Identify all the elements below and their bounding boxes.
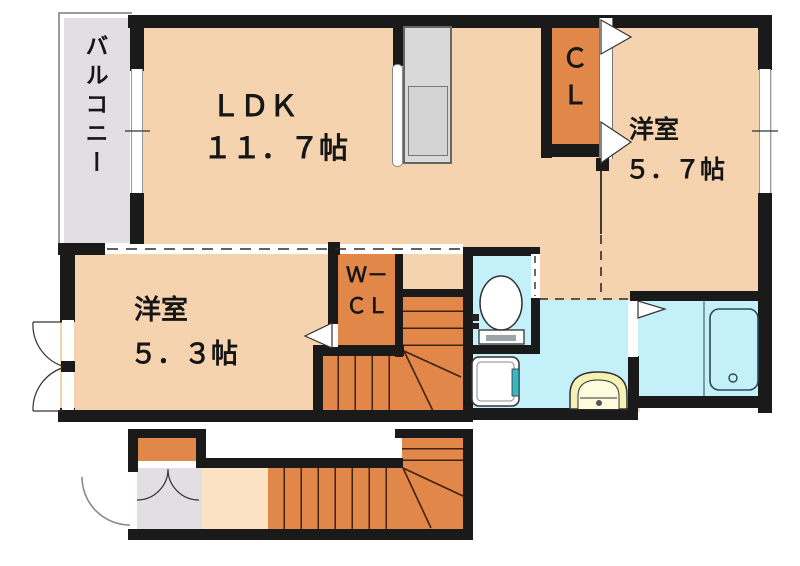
bedroom53-label: 洋室 ５．３帖 <box>130 288 238 376</box>
floorplan-canvas: バルコニー ＬＤＫ １１．７帖 Ｃ Ｌ 洋室 ５．７帖 Ｗ－ ＣＬ 洋室 ５．３… <box>0 0 800 566</box>
stairs-1f-winder <box>402 468 464 529</box>
window-53-lower <box>62 370 74 410</box>
wall-toilet-top <box>463 247 540 256</box>
wall-1f-leftblock-top <box>128 429 206 438</box>
wall-toilet-right <box>531 298 540 352</box>
washroom-floor <box>538 300 632 410</box>
wall-stairs-left <box>313 350 323 422</box>
wall-bath-left <box>628 356 639 400</box>
wcl-line2: ＣＬ <box>336 291 398 322</box>
wall-nub-cl-door <box>596 158 609 171</box>
opening-ldk-slide-band <box>105 244 463 254</box>
window-53-upper-arc <box>33 322 62 366</box>
stairs-1f-upper-block <box>402 438 464 468</box>
wall-ldk-left-upper <box>130 15 144 71</box>
shoe-cabinet <box>138 437 197 462</box>
wall-53-left-upper <box>60 243 75 322</box>
cl-label: Ｃ Ｌ <box>558 40 592 114</box>
door-cl-strip <box>599 18 613 159</box>
entrance-hall-floor <box>202 468 268 529</box>
window-53-upper <box>62 320 74 362</box>
stairs-2f-winder <box>402 350 463 412</box>
cl-line2: Ｌ <box>558 77 592 114</box>
wall-toilet-left <box>463 247 473 420</box>
bedroom53-name: 洋室 <box>130 288 238 332</box>
wall-cl-left <box>541 15 552 158</box>
wall-nub-slide-band <box>328 242 340 255</box>
wall-1f-bottom <box>128 529 473 540</box>
wall-1f-middle-top <box>196 458 403 468</box>
stairs-2f-lower-run <box>322 350 404 412</box>
wall-53-window-separator <box>61 361 75 372</box>
bedroom57-name: 洋室 <box>625 110 725 150</box>
wcl-label: Ｗ－ ＣＬ <box>336 260 398 322</box>
window-ldk-balcony <box>131 69 143 193</box>
wall-bath-top <box>630 291 772 301</box>
wall-toilet-bottom <box>463 345 540 354</box>
wall-1f-right <box>463 438 473 540</box>
bedroom57-label: 洋室 ５．７帖 <box>625 110 725 190</box>
bathroom-floor <box>636 299 761 398</box>
wcl-line1: Ｗ－ <box>336 260 398 291</box>
wall-exterior-right-lower <box>758 193 772 413</box>
kitchen-side-panel <box>392 64 403 167</box>
door-wcl <box>329 324 338 347</box>
front-door-swing-arc <box>82 477 130 525</box>
door-toilet <box>531 254 540 298</box>
ldk-label: ＬＤＫ １１．７帖 <box>203 86 348 170</box>
shoe-cabinet-counter <box>138 461 197 468</box>
door-bathroom <box>628 301 638 357</box>
washroom-floor-left <box>473 351 540 410</box>
wall-stairs-top <box>396 289 473 297</box>
entrance-floor <box>137 468 202 529</box>
wall-bottom-washroom <box>463 408 638 420</box>
wall-bottom-left <box>58 410 473 422</box>
wall-exterior-right-upper <box>758 15 772 70</box>
ldk-size: １１．７帖 <box>203 128 348 170</box>
wall-thin-57-partition <box>600 168 602 234</box>
window-53-lower-arc <box>33 368 62 411</box>
stairs-2f-upper-flight <box>402 295 463 352</box>
bedroom53-size: ５．３帖 <box>130 332 238 376</box>
wall-kitchen-stub <box>393 28 403 66</box>
stairs-1f-run <box>268 468 403 529</box>
wall-ldk-left-lower <box>130 193 144 247</box>
wall-1f-rightblock-top <box>395 429 473 438</box>
cl-line1: Ｃ <box>558 40 592 77</box>
wall-bottom-bath <box>628 396 772 408</box>
kitchen-sink <box>408 86 448 156</box>
bedroom57-size: ５．７帖 <box>625 150 725 190</box>
balcony-label: バルコニー <box>82 34 112 249</box>
wall-wcl-bottom <box>313 345 404 356</box>
ldk-name: ＬＤＫ <box>203 86 348 128</box>
wall-cl-bottom <box>541 144 603 157</box>
toilet-floor <box>473 255 531 345</box>
wall-1f-left <box>128 438 138 472</box>
window-57-right <box>759 69 771 193</box>
